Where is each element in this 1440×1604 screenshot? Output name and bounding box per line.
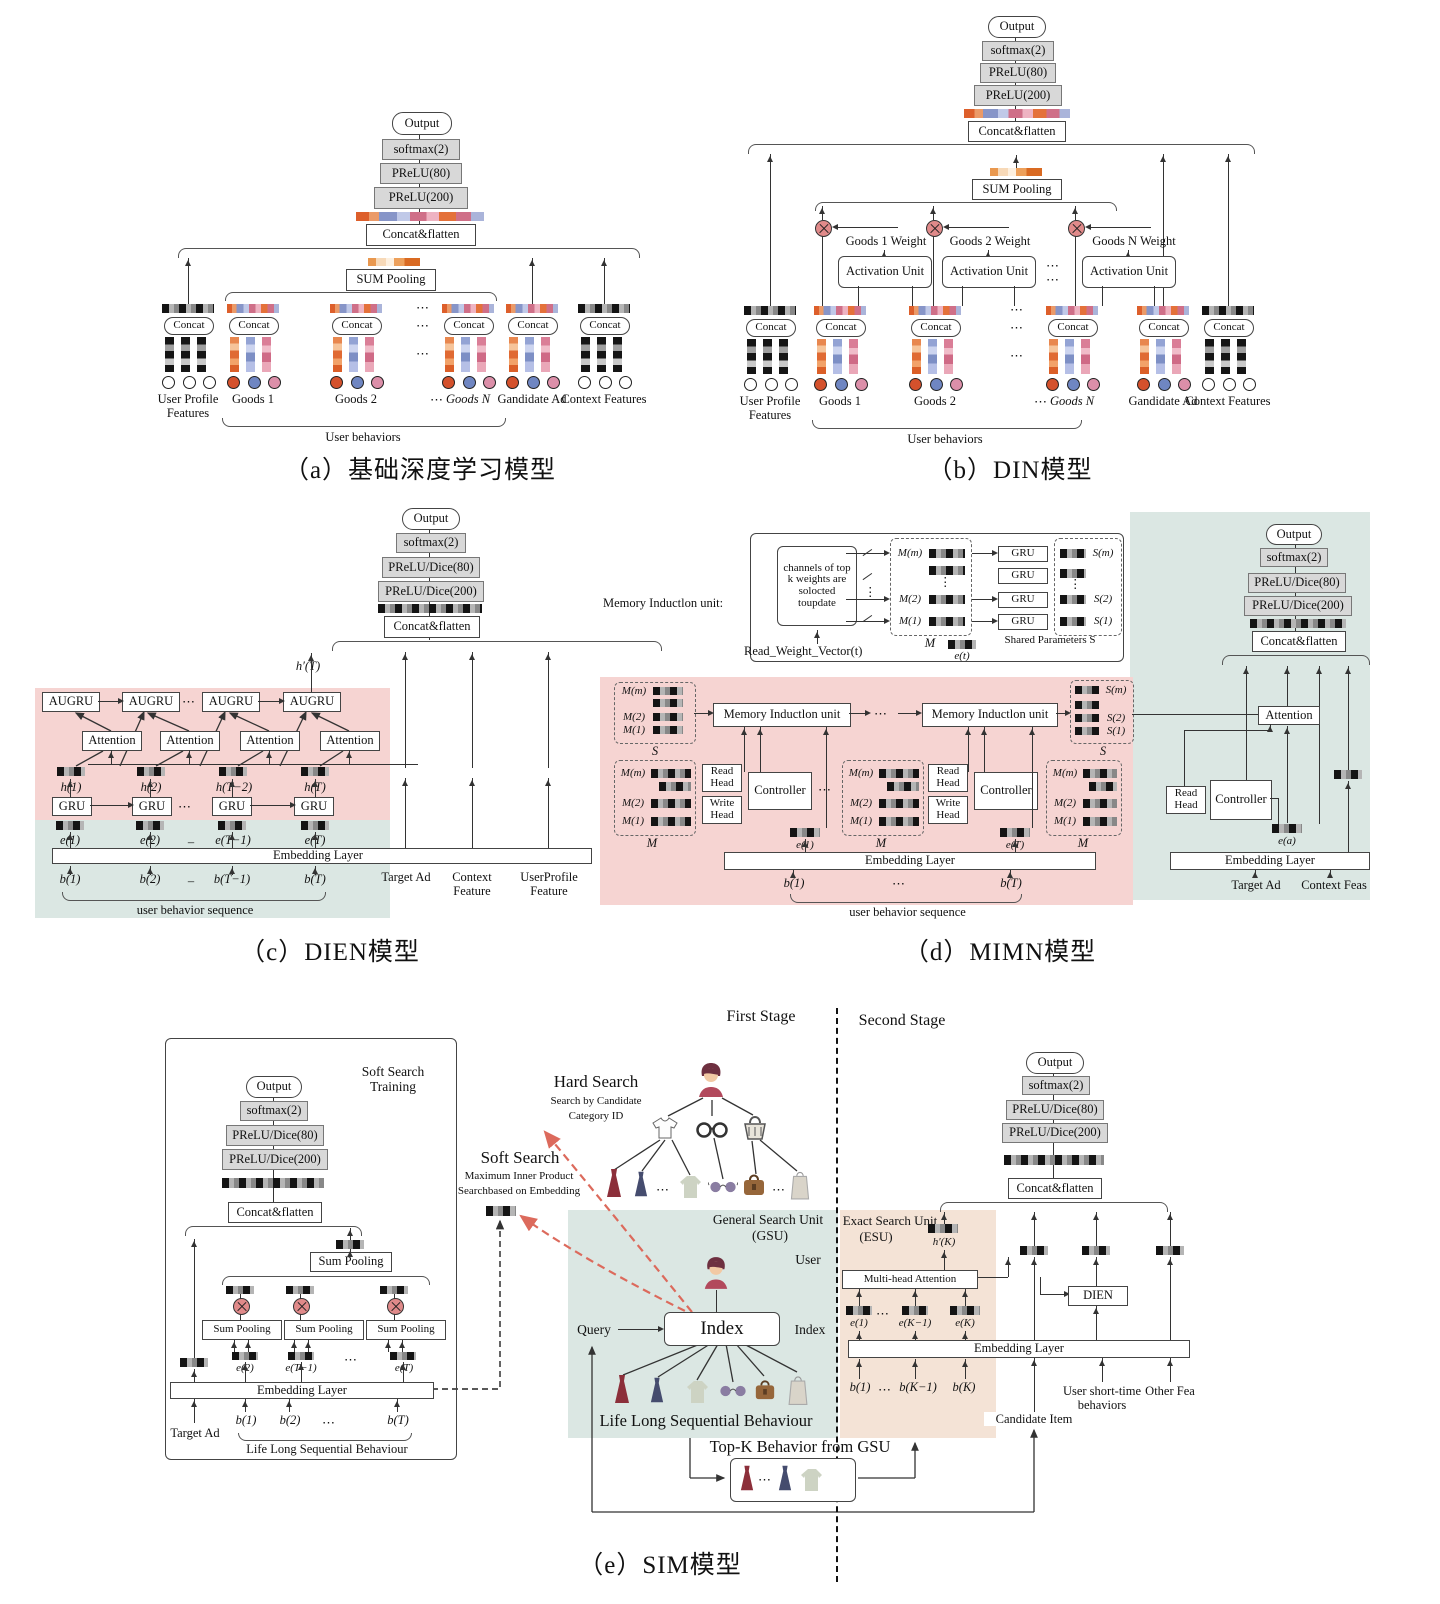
arrow: [898, 713, 920, 714]
arrow: [245, 1362, 246, 1382]
caption-b: （b）DIN模型: [850, 450, 1170, 486]
hard-search-sub1: Search by Candidate: [532, 1095, 660, 1107]
multiply-node: [815, 220, 832, 237]
ellipsis: ⋯: [1046, 272, 1060, 288]
connector: [1053, 1165, 1054, 1178]
ellipsis: ⋯: [322, 1415, 336, 1431]
arrow: [826, 727, 827, 828]
feature-group-candidate-ad: Concat Gandidate Ad: [492, 304, 572, 424]
pooled-vector: [368, 258, 420, 266]
connector: [1040, 1277, 1041, 1294]
arrow: [98, 701, 122, 702]
arrow: [150, 832, 151, 848]
concat-node: Concat: [229, 317, 279, 335]
e-vector: [950, 1306, 980, 1315]
connector: [978, 1277, 1008, 1278]
dien-box: DIEN: [1068, 1286, 1128, 1306]
b-label: b(T): [382, 1413, 414, 1427]
brace: [1222, 655, 1370, 665]
concat-flatten: Concat&flatten: [228, 1202, 322, 1223]
arrow: [760, 727, 761, 772]
arrow: [1056, 713, 1069, 714]
concat-node: Concat: [444, 317, 494, 335]
arrow: [965, 1359, 966, 1379]
multiply-node: [233, 1298, 250, 1315]
arrow: [245, 1399, 246, 1412]
read-head: Read Head: [928, 764, 968, 792]
context-feas-label: Context Feas: [1292, 878, 1376, 892]
connector: [1154, 286, 1155, 306]
embedding-layer: Embedding Layer: [848, 1340, 1190, 1358]
attention-box: Attention: [82, 731, 142, 751]
feature-vector: [1250, 619, 1346, 628]
feature-vector: [378, 604, 482, 613]
arrow: [822, 206, 823, 220]
multiply-node: [293, 1298, 310, 1315]
sum-pooling: Sum Pooling: [202, 1320, 282, 1340]
arrow: [188, 258, 189, 304]
input-label: Target Ad: [375, 870, 437, 884]
brace: [748, 144, 1255, 154]
group-label: Goods 1: [794, 394, 886, 408]
b-label: b(T−1): [206, 872, 258, 886]
concat-node: Concat: [1204, 319, 1254, 337]
arrow: [972, 599, 996, 600]
arrow: [1270, 724, 1271, 731]
m-row: M(m): [1048, 767, 1082, 779]
activation-unit: Activation Unit: [942, 256, 1036, 288]
connector: [822, 235, 823, 306]
m-row: M(1): [617, 724, 651, 736]
e-vector: [1000, 828, 1030, 837]
e-vector: [136, 821, 164, 830]
arrow: [915, 1331, 916, 1340]
goods-weight: Goods 2 Weight: [940, 234, 1040, 248]
augru-cell: AUGRU: [283, 692, 341, 712]
connector: [88, 764, 418, 765]
prelu80-layer: PReLU/Dice(80): [1006, 1100, 1104, 1120]
e-vector: [390, 1352, 416, 1360]
concat-flatten: Concat&flatten: [384, 616, 480, 638]
weighted-vector: [286, 1286, 314, 1294]
e-vector: [790, 828, 820, 837]
vector: [1156, 1246, 1184, 1255]
m-row: M(m): [844, 767, 878, 779]
llsb-label-gsu: Life Long Sequential Behaviour: [578, 1412, 834, 1430]
soft-search-vector: [486, 1206, 516, 1216]
arrow: [350, 1228, 351, 1240]
prelu200-layer: PReLU/Dice(200): [1244, 596, 1352, 616]
arrow: [859, 1331, 860, 1340]
attention-box: Attention: [320, 731, 380, 751]
concat-node: Concat: [1139, 319, 1189, 337]
gsu-label: General Search Unit: [700, 1212, 836, 1227]
arrow: [111, 750, 112, 764]
concat-node: Concat: [508, 317, 558, 335]
ellipsis: ⋯: [876, 1306, 890, 1322]
s-stack-label: S: [648, 744, 662, 758]
arrow: [388, 1340, 389, 1352]
ellipsis: ⋯: [772, 1182, 786, 1198]
controller: Controller: [974, 772, 1038, 810]
arrow: [933, 206, 934, 220]
arrow: [1348, 781, 1349, 852]
prelu200-layer: PReLU/Dice(200): [1002, 1123, 1108, 1143]
s-row: S(m): [1101, 684, 1131, 696]
vdots: ⋮: [864, 585, 874, 599]
attention-box: Attention: [160, 731, 220, 751]
hard-search-label: Hard Search: [538, 1072, 654, 1091]
ellipsis: ⋯: [818, 782, 832, 798]
read-head: Read Head: [702, 764, 742, 792]
hK-vector: [928, 1224, 958, 1233]
gru-cell: GRU: [998, 614, 1048, 630]
activation-unit: Activation Unit: [838, 256, 932, 288]
arrow: [1034, 1212, 1035, 1246]
connector: [1278, 798, 1279, 824]
arrow: [1170, 1257, 1171, 1340]
augru-cell: AUGRU: [122, 692, 180, 712]
m-row: M(1): [844, 815, 878, 827]
second-stage-label: Second Stage: [842, 1012, 962, 1030]
et-vector: [948, 640, 976, 649]
concat-node: Concat: [580, 317, 630, 335]
prelu200-layer: PReLU/Dice(200): [378, 581, 484, 602]
arrow: [308, 1340, 309, 1352]
sum-pooling: SUM Pooling: [972, 179, 1062, 200]
figure-canvas: Output softmax(2) PReLU(80) PReLU(200) C…: [0, 0, 1440, 1604]
sum-pooling: Sum Pooling: [284, 1320, 364, 1340]
e-vector: [846, 1306, 872, 1315]
embedding-layer: Embedding Layer: [724, 852, 1096, 870]
sum-pooling: Sum Pooling: [366, 1320, 446, 1340]
softmax-layer: softmax(2): [982, 41, 1054, 61]
brace: [62, 892, 326, 901]
channels-note: channels of top k weights are solocted t…: [777, 546, 857, 626]
feature-vector: [222, 1178, 324, 1188]
concat-flatten: Concat&flatten: [968, 121, 1066, 142]
arrow: [311, 653, 312, 692]
arrow: [1034, 1257, 1035, 1340]
m-row: M(1): [1048, 815, 1082, 827]
arrow: [234, 1340, 235, 1352]
h-vector: [219, 767, 247, 776]
augru-cell: AUGRU: [42, 692, 100, 712]
softmax-layer: softmax(2): [1022, 1076, 1090, 1095]
write-head: Write Head: [702, 796, 742, 824]
memory-stack-M: M(m) ⋮ M(2) M(1): [890, 538, 972, 636]
arrow: [859, 1359, 860, 1379]
group-label: Context Features: [1182, 394, 1274, 408]
gru-cell: GRU: [212, 797, 252, 816]
arrow: [301, 1362, 302, 1382]
caption-c: （c）DIEN模型: [200, 932, 460, 968]
arrow: [405, 652, 406, 768]
output-node: Output: [246, 1076, 302, 1098]
connector: [912, 286, 913, 306]
feature-vector: [1004, 1155, 1104, 1165]
h-vector: [301, 767, 329, 776]
miu-box: Memory Inductlon unit: [922, 703, 1058, 727]
e-vector: [218, 821, 246, 830]
ellipsis: ⋯: [182, 694, 196, 710]
ellipsis: ⋯: [878, 1382, 892, 1398]
arrow: [618, 1329, 662, 1330]
b-label: b(1): [230, 1413, 262, 1427]
target-ad-label: Target Ad: [162, 1426, 228, 1440]
connector: [1132, 714, 1258, 715]
miu-box: Memory Inductlon unit: [713, 703, 851, 727]
s-row: S(2): [1101, 712, 1131, 724]
arrow: [1040, 1294, 1068, 1295]
arrow: [403, 1362, 404, 1382]
prelu80-layer: PReLU/Dice(80): [1248, 573, 1346, 593]
e-label: e(K−1): [892, 1317, 938, 1329]
arrow: [915, 1359, 916, 1379]
gru-cell: GRU: [294, 797, 334, 816]
m-stack-label: M: [1076, 836, 1090, 850]
arrow: [70, 832, 71, 848]
e-label: e(K): [948, 1317, 982, 1329]
connector: [962, 286, 963, 306]
arrow: [189, 750, 190, 764]
first-stage-label: First Stage: [706, 1008, 816, 1026]
embedding-layer: Embedding Layer: [52, 848, 592, 864]
embedding-layer: Embedding Layer: [170, 1382, 434, 1399]
read-weight-vector: Read_Weight_Vector(t): [744, 644, 892, 658]
soft-search-label: Soft Search: [455, 1148, 585, 1167]
sequence-label: user behavior sequence: [95, 903, 295, 917]
arrow: [694, 713, 712, 714]
concat-node: Concat: [911, 319, 961, 337]
input-label: Context Feature: [438, 870, 506, 898]
user-label: User: [786, 1252, 830, 1267]
gru-cell: GRU: [132, 797, 172, 816]
e-label: e(1): [844, 1317, 874, 1329]
arrow: [1170, 1358, 1171, 1382]
arrow: [397, 1399, 398, 1412]
shared-params-label: Shared Parameters S: [982, 634, 1118, 646]
e-vector: [301, 821, 329, 830]
multiply-node: [387, 1298, 404, 1315]
hK-label: h′(K): [928, 1236, 960, 1248]
concat-node: Concat: [164, 317, 214, 335]
prelu80-layer: PReLU(80): [380, 163, 462, 184]
arrow: [350, 1249, 351, 1252]
index-label: Index: [788, 1322, 832, 1337]
arrow: [90, 805, 132, 806]
arrow: [1330, 870, 1331, 877]
gru-cell: GRU: [998, 568, 1048, 584]
group-label: Context Features: [558, 392, 650, 406]
arrow: [805, 839, 806, 852]
m-row: M(2): [893, 593, 927, 605]
arrow: [968, 727, 969, 772]
arrow: [1102, 1358, 1103, 1382]
prelu80-layer: PReLU(80): [980, 63, 1056, 83]
target-vector: [180, 1358, 208, 1367]
brace: [940, 1202, 1168, 1212]
vdots: ⋮: [939, 575, 949, 589]
arrow: [1087, 227, 1151, 228]
s-row: S(m): [1087, 547, 1119, 559]
arrow: [1032, 727, 1033, 828]
brace: [332, 641, 662, 651]
vector: [1020, 1246, 1048, 1255]
augru-cell: AUGRU: [202, 692, 260, 712]
arrow: [194, 1239, 195, 1358]
arrow: [150, 779, 151, 797]
arrow: [817, 630, 818, 644]
esu-label: Exact Search Unit: [838, 1214, 942, 1229]
soft-search-training-label: Soft Search Training: [340, 1064, 446, 1094]
vector: [1082, 1246, 1110, 1255]
connector: [716, 1290, 717, 1312]
feature-group-goodsN: Concat Goods N: [1032, 306, 1112, 426]
arrow: [532, 258, 533, 304]
input-label: UserProfile Feature: [510, 870, 588, 898]
et-label: e(t): [948, 650, 976, 662]
gru-cell: GRU: [998, 592, 1048, 608]
e-vector: [232, 1352, 258, 1360]
other-fea-label: Other Fea: [1140, 1384, 1200, 1398]
weighted-vector: [380, 1286, 408, 1294]
vector: [162, 304, 214, 313]
ellipsis: ⋯: [892, 876, 906, 892]
output-node: Output: [402, 508, 460, 530]
connector: [1184, 730, 1270, 731]
gsu-label2: (GSU): [742, 1228, 798, 1243]
b-label: b(1): [844, 1380, 876, 1394]
candidate-item-label: Candidate Item: [984, 1412, 1084, 1426]
vdots: ⋮: [1069, 577, 1079, 591]
arrow: [1170, 1212, 1171, 1246]
context-vector: [1334, 770, 1362, 779]
arrow: [604, 258, 605, 304]
caption-e: （e）SIM模型: [540, 1545, 780, 1581]
connector: [1184, 730, 1185, 786]
h-vector: [57, 767, 85, 776]
arrow: [744, 727, 745, 772]
m-stack-label: M: [922, 636, 938, 650]
b-label: b(K): [946, 1380, 982, 1394]
ellipsis: ⋯: [656, 1182, 670, 1198]
m-stack: M(m) M(2) M(1): [1046, 760, 1122, 836]
arrow: [349, 750, 350, 764]
goods-weight: Goods N Weight: [1082, 234, 1186, 248]
arrow: [258, 701, 283, 702]
arrow: [472, 778, 473, 848]
embedding-layer: Embedding Layer: [1170, 852, 1370, 870]
target-ad-label: Target Ad: [1224, 878, 1288, 892]
group-label: Goods 2: [889, 394, 981, 408]
arrow: [1255, 870, 1256, 877]
arrow: [548, 778, 549, 848]
arrow: [846, 599, 888, 600]
arrow: [1016, 155, 1017, 168]
arrow: [1287, 726, 1288, 823]
arrow: [402, 1340, 403, 1352]
prelu200-layer: PReLU(200): [374, 187, 468, 209]
llsb-label: Life Long Sequential Behaviour: [222, 1442, 432, 1456]
arrow: [1287, 666, 1288, 706]
activation-unit: Activation Unit: [1082, 256, 1176, 288]
h-vector: [137, 767, 165, 776]
arrow: [315, 832, 316, 848]
h-prime-label: h′(T): [288, 659, 328, 673]
arrow: [965, 1331, 966, 1340]
m-stack-label: M: [645, 836, 659, 850]
arrow: [269, 750, 270, 764]
s-row: S(1): [1087, 615, 1119, 627]
feature-group-goods2: Concat Goods 2: [895, 306, 975, 426]
group-label: Goods 1: [207, 392, 299, 406]
controller: Controller: [1210, 780, 1272, 820]
concat-node: Concat: [332, 317, 382, 335]
m-row: M(m): [616, 767, 650, 779]
ea-label: e(a): [1274, 835, 1300, 847]
s-stack-left: M(m) M(2) M(1): [614, 682, 696, 744]
feature-group-goods1: Concat Goods 1: [213, 304, 293, 424]
caption-a: （a）基础深度学习模型: [240, 450, 600, 486]
ellipsis: ⋯: [874, 706, 888, 722]
arrow: [1348, 666, 1349, 770]
multi-head-attention: Multi-head Attention: [842, 1270, 978, 1289]
attention-box: Attention: [240, 731, 300, 751]
output-node: Output: [988, 16, 1046, 38]
arrow: [972, 621, 996, 622]
arrow: [846, 553, 888, 554]
arrow: [472, 652, 473, 768]
read-head: Read Head: [1166, 786, 1206, 814]
e-vector: [902, 1306, 928, 1315]
concat-flatten: Concat&flatten: [1008, 1178, 1102, 1199]
arrow: [248, 1340, 249, 1352]
ellipsis: ⋯: [344, 1352, 358, 1368]
m-row: M(1): [616, 815, 650, 827]
connector: [1075, 235, 1076, 306]
arrow: [944, 1250, 945, 1270]
brace: [812, 420, 1082, 429]
e-vector: [288, 1352, 314, 1360]
feature-group-goods2: Concat Goods 2: [316, 304, 396, 424]
ellipsis: ⋯: [1010, 302, 1024, 318]
connector: [1102, 286, 1103, 306]
feature-vector: [356, 212, 484, 221]
index-box: Index: [664, 1312, 780, 1346]
brace: [225, 292, 497, 301]
s-row: S(2): [1087, 593, 1119, 605]
soft-search-sub1: Maximum Inner Product: [444, 1170, 594, 1182]
gru-cell: GRU: [998, 546, 1048, 562]
b-label: b(K−1): [894, 1380, 942, 1394]
brace: [185, 1226, 362, 1236]
connector: [858, 286, 859, 306]
ellipsis: ⋯: [1010, 320, 1024, 336]
arrow: [250, 805, 294, 806]
dash: –: [184, 835, 198, 849]
arrow: [945, 227, 1009, 228]
caption-d: （d）MIMN模型: [870, 932, 1130, 968]
softmax-layer: softmax(2): [1260, 548, 1328, 567]
output-node: Output: [392, 112, 452, 135]
arrow: [1096, 1212, 1097, 1246]
arrow: [915, 1289, 916, 1306]
s-row: S(1): [1101, 725, 1131, 737]
arrow: [70, 779, 71, 797]
arrow: [1075, 206, 1076, 220]
arrow: [770, 154, 771, 306]
